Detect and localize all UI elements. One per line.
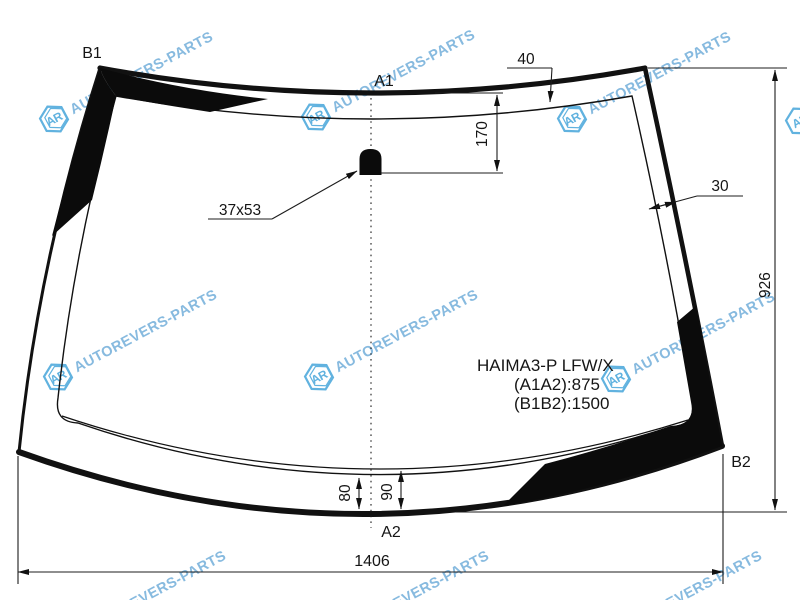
- corner-label-a2: A2: [381, 524, 401, 541]
- corner-label-b1: B1: [82, 45, 102, 62]
- dim-side-band: 30: [649, 178, 743, 209]
- frit-band-top: [100, 68, 268, 112]
- dim-sensor-offset-label: 170: [474, 121, 491, 147]
- dim-glass-width-label: 1406: [354, 553, 390, 570]
- dim-sensor-size-label: 37x53: [219, 202, 261, 219]
- windshield-drawing-canvas: AR AUTOREVERS-PARTS AR AUTOREVERS-PARTS …: [0, 0, 800, 600]
- dim-bottom-offset-right-label: 90: [379, 483, 396, 501]
- watermark-text: AUTOREVERS-PARTS: [329, 27, 478, 116]
- part-model: HAIMA3-P LFW/X: [477, 356, 614, 375]
- sensor-mark: [360, 149, 382, 175]
- watermark: AR AUTOREVERS-PARTS: [302, 281, 484, 395]
- dim-glass-height-label: 926: [757, 272, 774, 298]
- dim-arrow: [550, 68, 552, 102]
- watermark-text: AUTOREVERS-PARTS: [71, 287, 220, 376]
- watermark-text: AUTOREVERS-PARTS: [332, 287, 481, 376]
- dim-sensor-offset: 170: [381, 93, 503, 173]
- watermark-text: AUTOREVERS-PARTS: [80, 548, 229, 600]
- frit-band-left: [52, 68, 116, 236]
- dim-arrow: [272, 171, 357, 219]
- dim-sensor-size: 37x53: [208, 171, 357, 219]
- part-b1b2-distance: (B1B2):1500: [514, 394, 609, 413]
- watermark: AR: [783, 103, 800, 139]
- corner-label-a1: A1: [374, 73, 394, 90]
- part-info: HAIMA3-P LFW/X (A1A2):875 (B1B2):1500: [477, 356, 614, 413]
- corner-label-b2: B2: [731, 454, 751, 471]
- dim-bottom-offset-left-label: 80: [337, 484, 354, 502]
- watermark-text: AUTOREVERS-PARTS: [616, 548, 765, 600]
- dim-bottom-offsets: 80 90: [337, 471, 401, 509]
- dim-top-band: 40: [507, 51, 552, 102]
- dim-top-band-label: 40: [517, 51, 535, 68]
- watermark: AR AUTOREVERS-PARTS: [50, 542, 232, 600]
- technical-drawing: AR AUTOREVERS-PARTS AR AUTOREVERS-PARTS …: [0, 0, 800, 600]
- watermark: AR AUTOREVERS-PARTS: [41, 281, 223, 395]
- watermark: AR AUTOREVERS-PARTS: [313, 542, 495, 600]
- watermark: AR AUTOREVERS-PARTS: [586, 542, 768, 600]
- dim-side-band-label: 30: [711, 178, 729, 195]
- part-a1a2-distance: (A1A2):875: [514, 375, 600, 394]
